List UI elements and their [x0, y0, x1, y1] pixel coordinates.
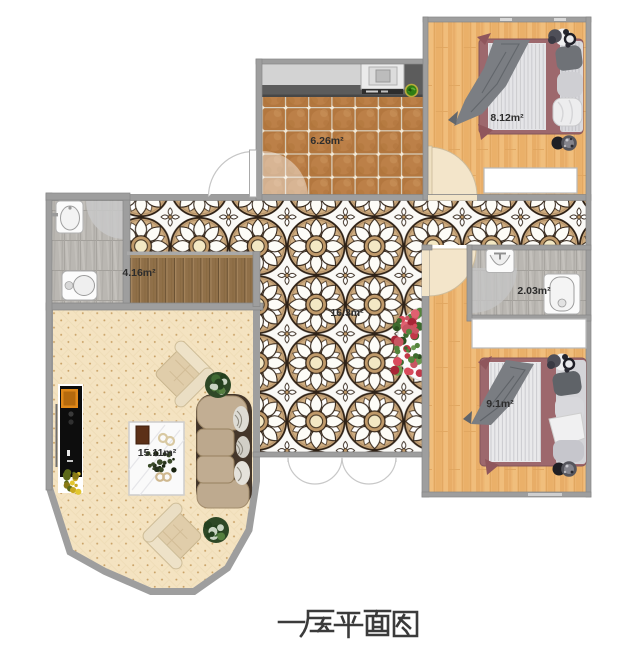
svg-text:9.1m²: 9.1m² — [486, 398, 514, 410]
svg-text:8.12m²: 8.12m² — [490, 112, 524, 124]
svg-text:16.3m²: 16.3m² — [330, 307, 364, 319]
svg-text:6.26m²: 6.26m² — [310, 135, 344, 147]
svg-text:15.11m²: 15.11m² — [138, 447, 177, 459]
svg-text:4.16m²: 4.16m² — [122, 267, 156, 279]
svg-text:2.03m²: 2.03m² — [517, 285, 551, 297]
